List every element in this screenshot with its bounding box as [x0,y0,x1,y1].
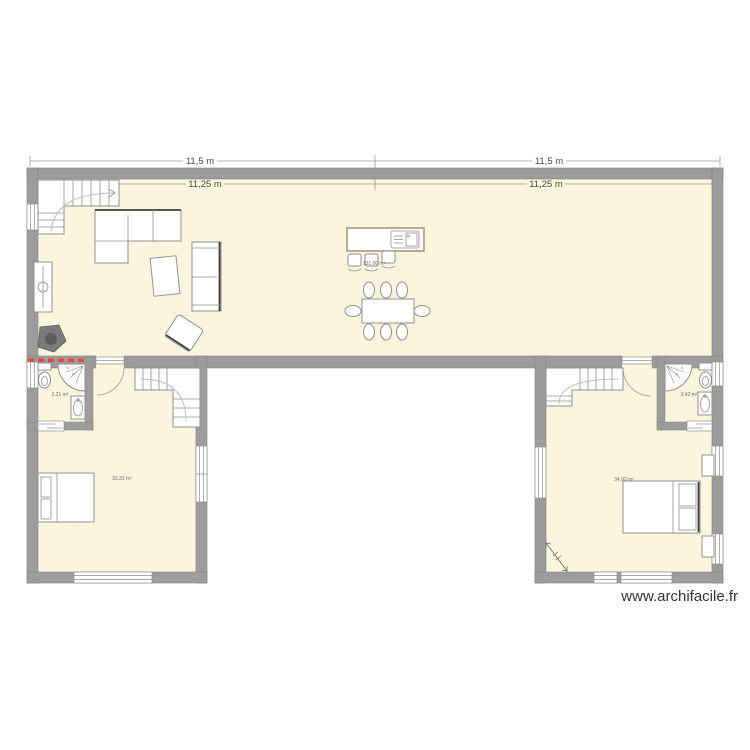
sliding-door-bath-left[interactable] [38,421,64,431]
window-left-wing-south[interactable] [74,572,152,583]
toilet-right[interactable] [699,363,712,388]
dim-label-top-left: 11,5 m [186,156,214,167]
area-label-bath-left: 3,21 m² [52,392,69,398]
window-right-wing-south-small[interactable] [594,572,617,583]
kitchen-island[interactable] [347,228,424,251]
nightstand-top[interactable] [702,455,714,476]
window-right-wing-south-large[interactable] [621,572,672,583]
wall-top[interactable] [27,168,723,179]
dining-chair[interactable] [364,324,375,340]
area-label-living: 131,06 m² [363,261,386,267]
coffee-table[interactable] [150,256,180,297]
living-room-floor[interactable] [38,179,712,356]
wall-bath-right-partition[interactable] [657,356,665,430]
dining-chair[interactable] [397,324,408,340]
washbasin-left[interactable] [71,396,85,419]
dining-chair[interactable] [364,282,375,298]
dim-label-inner-right: 11,25 m [529,179,563,190]
area-label-bedroom-left: 33,32 m² [112,476,132,482]
window-bath-right[interactable] [712,362,723,386]
area-label-bath-right: 3,42 m² [681,392,698,398]
dim-label-top-right: 11,5 m [535,156,563,167]
watermark: www.archifacile.fr [620,588,738,605]
sofa[interactable] [192,242,221,311]
dining-chair[interactable] [381,282,392,298]
sliding-door-bath-right[interactable] [687,421,712,431]
window-bath-left[interactable] [27,362,38,388]
floor-plan-canvas: 11,5 m 11,5 m 11,25 m 11,25 m [0,0,750,750]
window-right-wing-west[interactable] [535,447,546,498]
dining-chair[interactable] [345,306,361,317]
nightstand-bottom[interactable] [702,536,714,557]
area-label-bedroom-right: 34,92 m² [614,477,634,483]
window-left-wing-east[interactable] [196,446,207,502]
washbasin-right[interactable] [698,392,712,415]
floor-plan-svg: 11,5 m 11,5 m 11,25 m 11,25 m [0,0,750,750]
dim-label-inner-left: 11,25 m [188,179,222,190]
dining-chair[interactable] [397,282,408,298]
dining-chair[interactable] [381,324,392,340]
toilet-left[interactable] [38,363,51,388]
tv-cabinet[interactable] [34,262,52,312]
window-living-left[interactable] [27,204,38,230]
dining-table[interactable] [362,299,414,323]
bed-left[interactable] [38,473,94,522]
bed-right[interactable] [623,481,700,533]
wall-bath-left-partition[interactable] [85,356,93,430]
dining-chair[interactable] [414,306,430,317]
